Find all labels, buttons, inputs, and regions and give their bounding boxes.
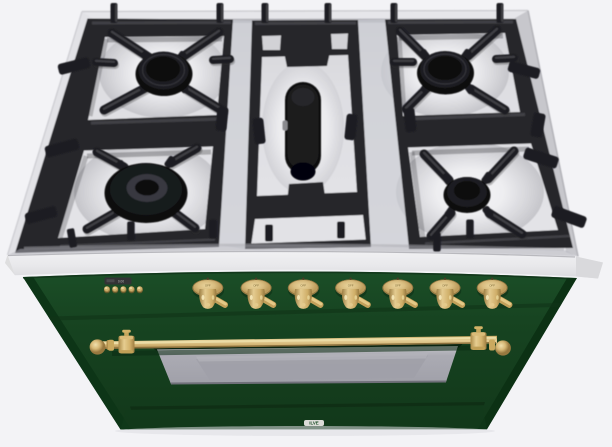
svg-text:0.00: 0.00	[118, 280, 124, 284]
svg-text:OFF: OFF	[489, 283, 495, 287]
svg-text:OFF: OFF	[348, 283, 354, 287]
svg-text:OFF: OFF	[205, 283, 211, 287]
svg-text:OFF: OFF	[395, 283, 401, 287]
svg-text:OFF: OFF	[442, 283, 448, 287]
svg-text:ILVE: ILVE	[309, 421, 319, 426]
svg-text:OFF: OFF	[253, 283, 259, 287]
svg-text:OFF: OFF	[300, 283, 306, 287]
